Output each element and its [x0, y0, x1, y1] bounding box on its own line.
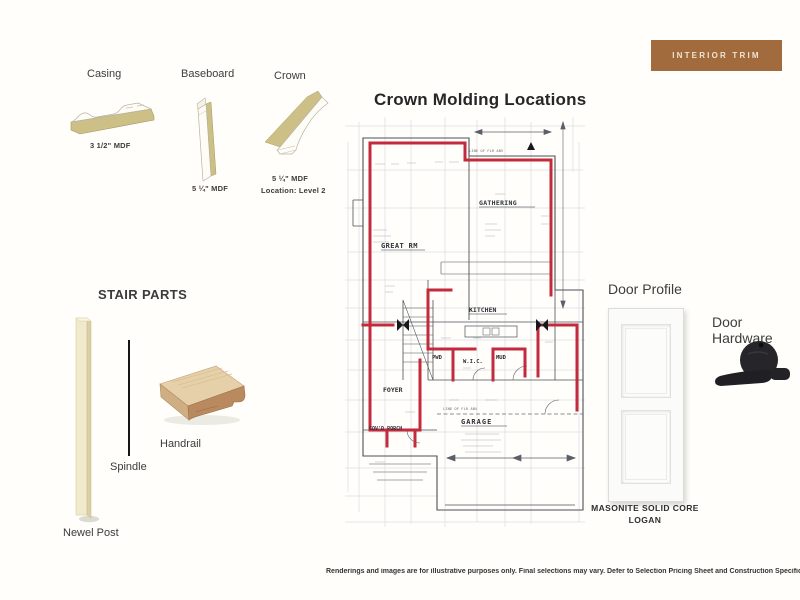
- casing-spec: 3 1/2" MDF: [90, 141, 131, 150]
- room-label-great-rm: GREAT RM: [381, 242, 418, 250]
- crown-profile-image: [255, 88, 330, 163]
- door-swing-arcs: [407, 366, 559, 443]
- beam-bowtie-symbols: [397, 142, 548, 331]
- newel-post-label: Newel Post: [63, 527, 119, 539]
- handrail-label: Handrail: [160, 438, 201, 450]
- room-label-mud: MUD: [496, 355, 507, 361]
- plan-annotation-line-of-flr-abv: LINE OF FLR ABV: [469, 148, 504, 153]
- plan-annotation-line-of-flr-abv-2: LINE OF FLR ABV: [443, 406, 478, 411]
- spindle-label: Spindle: [110, 461, 147, 473]
- door-top-panel: [621, 324, 671, 398]
- baseboard-spec: 5 ¼" MDF: [192, 184, 228, 193]
- crown-title: Crown: [274, 70, 306, 82]
- stair-parts-title: STAIR PARTS: [98, 287, 187, 302]
- door-image: [608, 308, 684, 502]
- floor-plan-image: GREAT RM GATHERING KITCHEN PWD W.I.C. MU…: [345, 112, 585, 532]
- interior-trim-selection-sheet: INTERIOR TRIM Casing 3 1/2" MDF Baseboar…: [0, 0, 800, 600]
- newel-post-image: [72, 312, 100, 526]
- crown-location: Location: Level 2: [261, 186, 326, 195]
- room-label-gathering: GATHERING: [479, 199, 517, 207]
- room-label-kitchen: KITCHEN: [469, 306, 496, 314]
- truss-line: [447, 455, 575, 461]
- door-model-label: LOGAN: [585, 515, 705, 525]
- door-brand-label: MASONITE SOLID CORE: [585, 503, 705, 513]
- room-label-wic: W.I.C.: [463, 359, 483, 365]
- room-label-covd-porch: COV'D PORCH: [369, 426, 402, 432]
- crown-molding-highlight-lines: [363, 143, 577, 446]
- room-label-foyer: FOYER: [383, 386, 403, 394]
- room-label-garage: GARAGE: [461, 418, 492, 426]
- interior-trim-banner: INTERIOR TRIM: [651, 40, 782, 71]
- casing-title: Casing: [87, 68, 121, 80]
- spindle-image: [128, 340, 130, 456]
- interior-trim-banner-label: INTERIOR TRIM: [672, 51, 761, 60]
- baseboard-title: Baseboard: [181, 68, 234, 80]
- handrail-image: [152, 362, 248, 428]
- casing-profile-image: [66, 92, 158, 142]
- footer-disclaimer: Renderings and images are for illustrati…: [326, 568, 800, 575]
- door-profile-title: Door Profile: [608, 281, 682, 297]
- baseboard-profile-image: [188, 93, 222, 185]
- crown-spec: 5 ¼" MDF: [272, 174, 308, 183]
- door-lever-image: [712, 336, 796, 398]
- floor-plan-title: Crown Molding Locations: [374, 90, 586, 110]
- door-bottom-panel: [621, 410, 671, 484]
- room-label-pwd: PWD: [432, 355, 443, 361]
